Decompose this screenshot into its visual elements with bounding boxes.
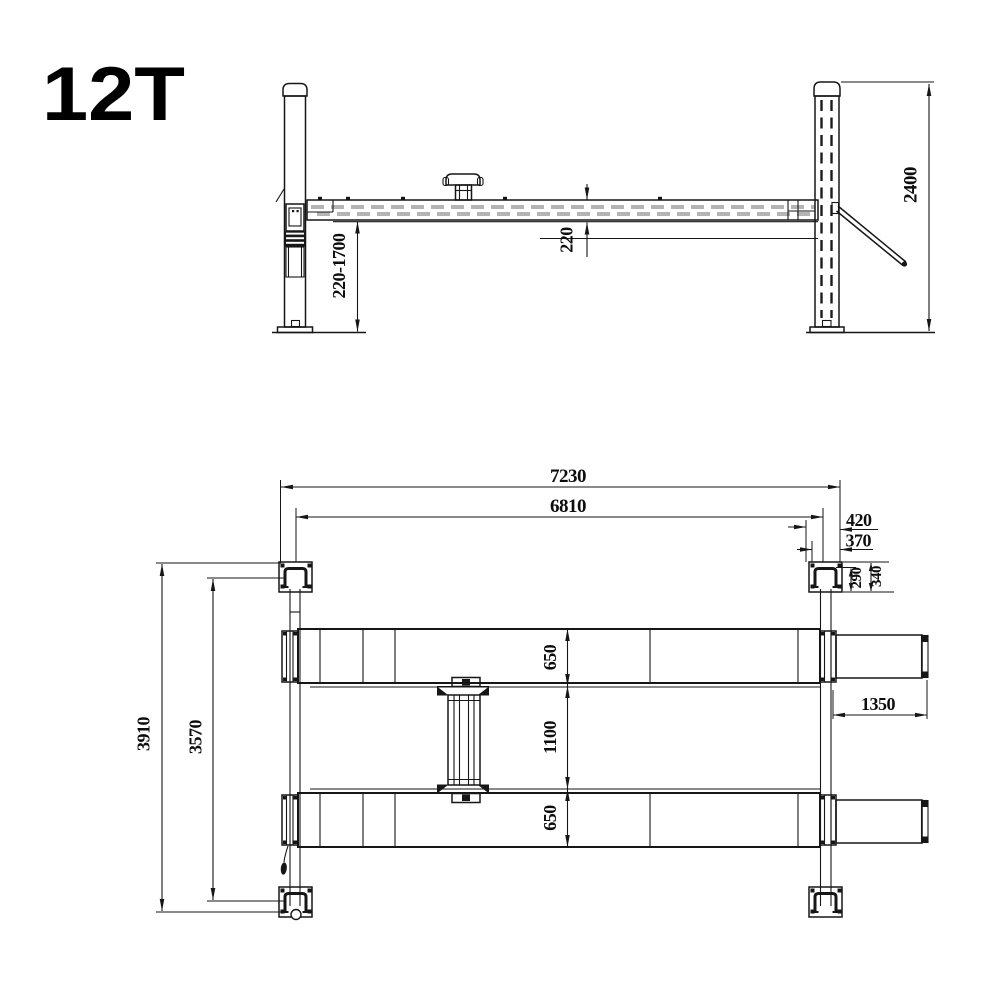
dim-runway-gap: 1100 — [540, 721, 560, 755]
technical-drawing-canvas: 12T — [0, 0, 994, 1000]
dim-overall-width: 3910 — [134, 717, 154, 752]
dim-post-width: 420 — [846, 510, 872, 530]
plan-view: 7230 6810 420 370 290 340 — [134, 466, 929, 920]
lock-bracket — [286, 232, 305, 246]
power-unit — [286, 247, 304, 277]
post-bottom-right — [809, 887, 842, 917]
dim-runway-thickness: 220 — [557, 227, 577, 253]
ramp-rear-plan — [836, 800, 928, 843]
dim-runway-width-front: 650 — [540, 644, 560, 670]
post-top-left — [279, 562, 312, 592]
carriage-slider — [820, 631, 836, 682]
crossbeam-right — [821, 589, 832, 906]
weld-tick — [276, 189, 284, 202]
control-box — [286, 204, 304, 231]
capacity-label: 12T — [42, 52, 185, 137]
lift-drawing: 12T — [0, 0, 994, 1000]
approach-ramp-side — [832, 203, 907, 267]
carriage-slider — [820, 795, 836, 845]
dim-inner-width: 3570 — [186, 720, 206, 755]
anchor-circle — [291, 910, 301, 920]
right-column — [810, 82, 907, 333]
dim-channel-depth: 290 — [849, 568, 865, 589]
dim-overall-length: 7230 — [550, 466, 586, 487]
post-top-right — [809, 562, 842, 592]
hydraulic-cylinder-icon — [443, 174, 483, 200]
post-bottom-left — [279, 887, 312, 920]
dim-lift-height-range: 220-1700 — [329, 233, 349, 298]
ramp-front-plan — [836, 635, 928, 678]
side-view: 2400 220-1700 220 — [272, 82, 935, 333]
dim-inner-length: 6810 — [550, 496, 586, 517]
plan-view-dimensions: 7230 6810 420 370 290 340 — [134, 466, 928, 912]
dim-runway-width-rear: 650 — [540, 805, 560, 831]
dim-column-height: 2400 — [901, 167, 922, 203]
release-cable — [280, 846, 288, 875]
dim-ramp-length: 1350 — [861, 694, 896, 714]
dim-post-depth: 340 — [869, 566, 885, 587]
dim-post-inner-width: 370 — [846, 531, 872, 551]
cross-cylinder-plan — [437, 678, 489, 803]
